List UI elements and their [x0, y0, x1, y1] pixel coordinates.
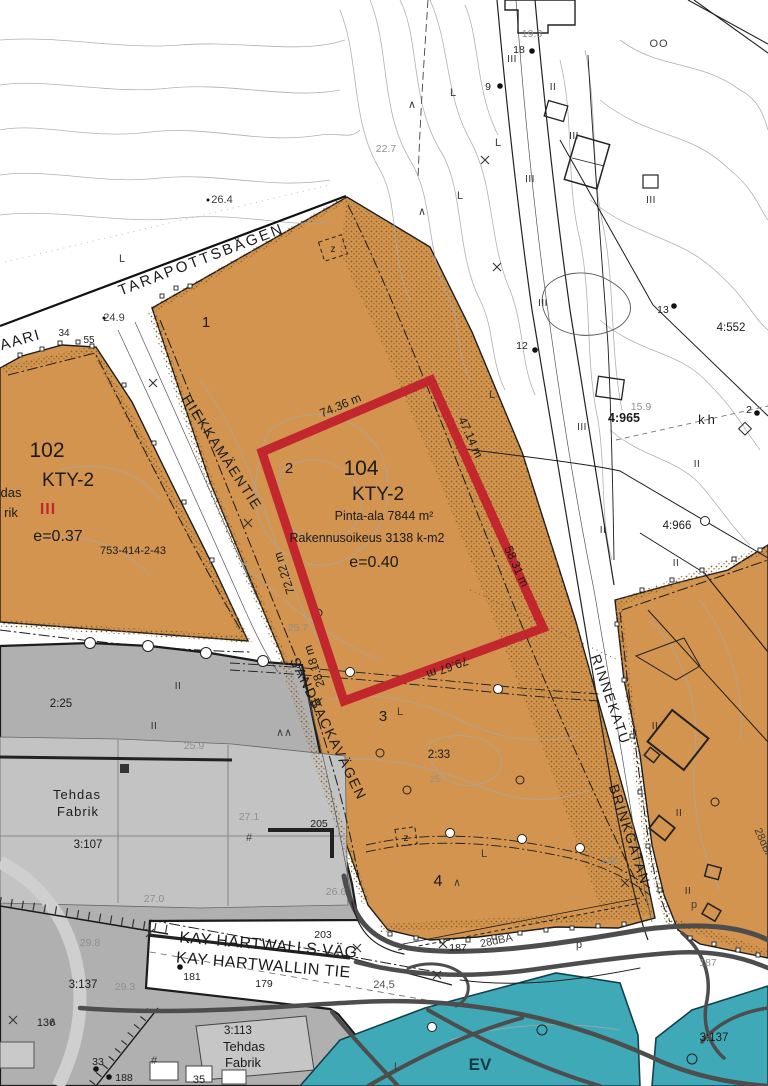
parcel-2-25: 2:25	[50, 698, 72, 710]
tree-symbol-4: ∧	[453, 877, 461, 889]
elevation-19-3: 19.3	[522, 28, 543, 40]
plot-number-2: 2	[285, 460, 293, 477]
elevation-26-4: 26.4	[211, 194, 232, 206]
elevation-24-5: 24,5	[373, 979, 394, 991]
storey-ii-2: II	[694, 459, 701, 470]
parcel-3-107: 3:107	[74, 839, 103, 851]
hash-symbol-2: #	[151, 1055, 158, 1067]
elevation-29-8: 29.8	[80, 937, 101, 949]
storey-ii-1: II	[550, 82, 557, 93]
symbol-l-5: L	[489, 389, 495, 401]
symbol-l-7: L	[394, 1061, 400, 1073]
number-187-left: 187	[449, 942, 467, 954]
parking-symbol-1: p	[576, 939, 582, 951]
storey-iii-5: III	[538, 298, 548, 309]
parcel-4-966: 4:966	[663, 520, 692, 532]
symbol-l-3: L	[495, 137, 501, 149]
number-33: 33	[92, 1056, 104, 1068]
parcel-4-552: 4:552	[717, 322, 746, 334]
elevation-25-9: 25.9	[184, 740, 205, 752]
number-179: 179	[255, 978, 273, 990]
parcel-3-113: 3:113	[224, 1025, 252, 1037]
storey-ii-9: II	[685, 886, 692, 897]
district-104-zoning: KTY-2	[352, 484, 404, 505]
number-12: 12	[516, 340, 528, 352]
zoning-map: TARAPOTTSBÅGEN KAARI HIEKKAMÄENTIE SANDB…	[0, 0, 768, 1086]
number-181: 181	[183, 971, 201, 983]
tehdas-label-1: Tehdas	[53, 787, 101, 802]
storey-ii-6: II	[151, 721, 158, 732]
plot-number-1: 1	[202, 314, 210, 331]
tree-symbol-3: ∧	[49, 1016, 57, 1028]
number-205: 205	[310, 818, 328, 830]
elevation-24-9: 24.9	[103, 312, 124, 324]
storey-iii-6: III	[577, 422, 587, 433]
number-188: 188	[115, 1072, 133, 1084]
number-203: 203	[314, 929, 332, 941]
tree-symbol-1: ∧	[408, 99, 416, 111]
zone-ev-label: EV	[469, 1055, 492, 1074]
number-9: 9	[485, 81, 491, 93]
elevation-27-1: 27.1	[239, 811, 260, 823]
number-126: 126	[600, 855, 618, 867]
district-102-parcel-id: 753-414-2-43	[100, 545, 166, 557]
number-35: 35	[193, 1074, 205, 1086]
district-104-building-right: Rakennusoikeus 3138 k-m2	[290, 531, 445, 545]
number-2: 2	[746, 404, 752, 416]
hash-symbol-1: #	[246, 832, 253, 844]
fabrik-label-2: Fabrik	[225, 1055, 262, 1070]
parking-symbol-2: p	[691, 899, 697, 911]
fabrik-label-1: Fabrik	[57, 804, 99, 819]
storey-iii-4: III	[646, 195, 656, 206]
fabrik-clipped-label: rik	[4, 505, 18, 520]
factory-building-area	[0, 737, 348, 908]
tehdas-clipped-label: das	[1, 485, 22, 500]
storey-ii-3: II	[600, 525, 607, 536]
number-34: 34	[58, 328, 70, 339]
kh-label: kh	[698, 412, 718, 427]
storey-iii-2: III	[569, 131, 579, 142]
district-102-storeys: III	[40, 501, 56, 518]
parcel-3-137-right: 3:137	[700, 1032, 729, 1044]
tree-symbol-5: ∧∧	[276, 727, 292, 739]
elevation-26-6: 26.6	[326, 886, 347, 898]
elevation-25-7: 25.7	[288, 622, 309, 634]
symbol-l-8: L	[481, 848, 487, 860]
district-104-number: 104	[343, 457, 378, 480]
parcel-4-965: 4:965	[608, 411, 640, 425]
number-55: 55	[83, 335, 95, 346]
symbol-l-1: L	[119, 253, 125, 265]
symbol-z-1: z	[331, 244, 336, 255]
tree-symbol-2: ∧	[418, 206, 426, 218]
storey-ii-5: II	[175, 681, 182, 692]
symbol-oo: OO	[649, 38, 668, 50]
district-102-efficiency: e=0.37	[33, 528, 82, 545]
symbol-l-6: L	[397, 706, 403, 718]
number-13: 13	[657, 304, 669, 316]
number-187-right: 187	[699, 957, 717, 969]
plot-number-4: 4	[434, 873, 443, 890]
elevation-25: 25	[430, 774, 440, 784]
tehdas-label-2: Tehdas	[223, 1039, 265, 1054]
district-102-number: 102	[29, 439, 64, 462]
district-102-zoning: KTY-2	[42, 470, 94, 491]
parcel-2-33: 2:33	[428, 749, 450, 761]
map-canvas[interactable]: TARAPOTTSBÅGEN KAARI HIEKKAMÄENTIE SANDB…	[0, 0, 768, 1086]
symbol-l-2: L	[450, 87, 456, 99]
district-104-efficiency: e=0.40	[349, 554, 398, 571]
elevation-29-3: 29.3	[115, 981, 136, 993]
storey-ii-8: II	[676, 808, 683, 819]
plot-number-3: 3	[379, 708, 387, 725]
district-104-area: Pinta-ala 7844 m²	[335, 509, 434, 523]
elevation-15-9: 15.9	[631, 401, 652, 413]
elevation-22-7: 22.7	[376, 143, 397, 155]
parcel-3-137-left: 3:137	[69, 979, 98, 991]
symbol-z-2: z	[404, 833, 409, 844]
storey-ii-4: II	[673, 558, 680, 569]
storey-iii-1: III	[507, 54, 517, 65]
elevation-27-0: 27.0	[144, 893, 165, 905]
storey-iii-3: III	[525, 174, 535, 185]
symbol-l-4: L	[457, 190, 463, 202]
storey-ii-7: II	[652, 721, 659, 732]
